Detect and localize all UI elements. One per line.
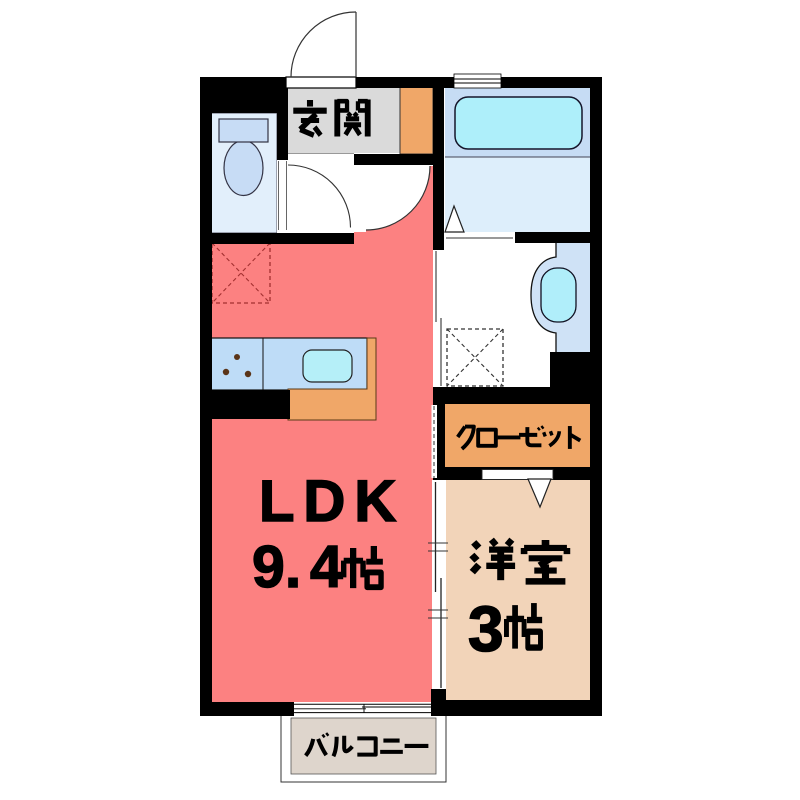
svg-text:4: 4 (310, 534, 343, 600)
svg-text:LDK: LDK (259, 469, 405, 534)
svg-text:9.: 9. (252, 534, 301, 600)
svg-text:3: 3 (468, 593, 504, 665)
